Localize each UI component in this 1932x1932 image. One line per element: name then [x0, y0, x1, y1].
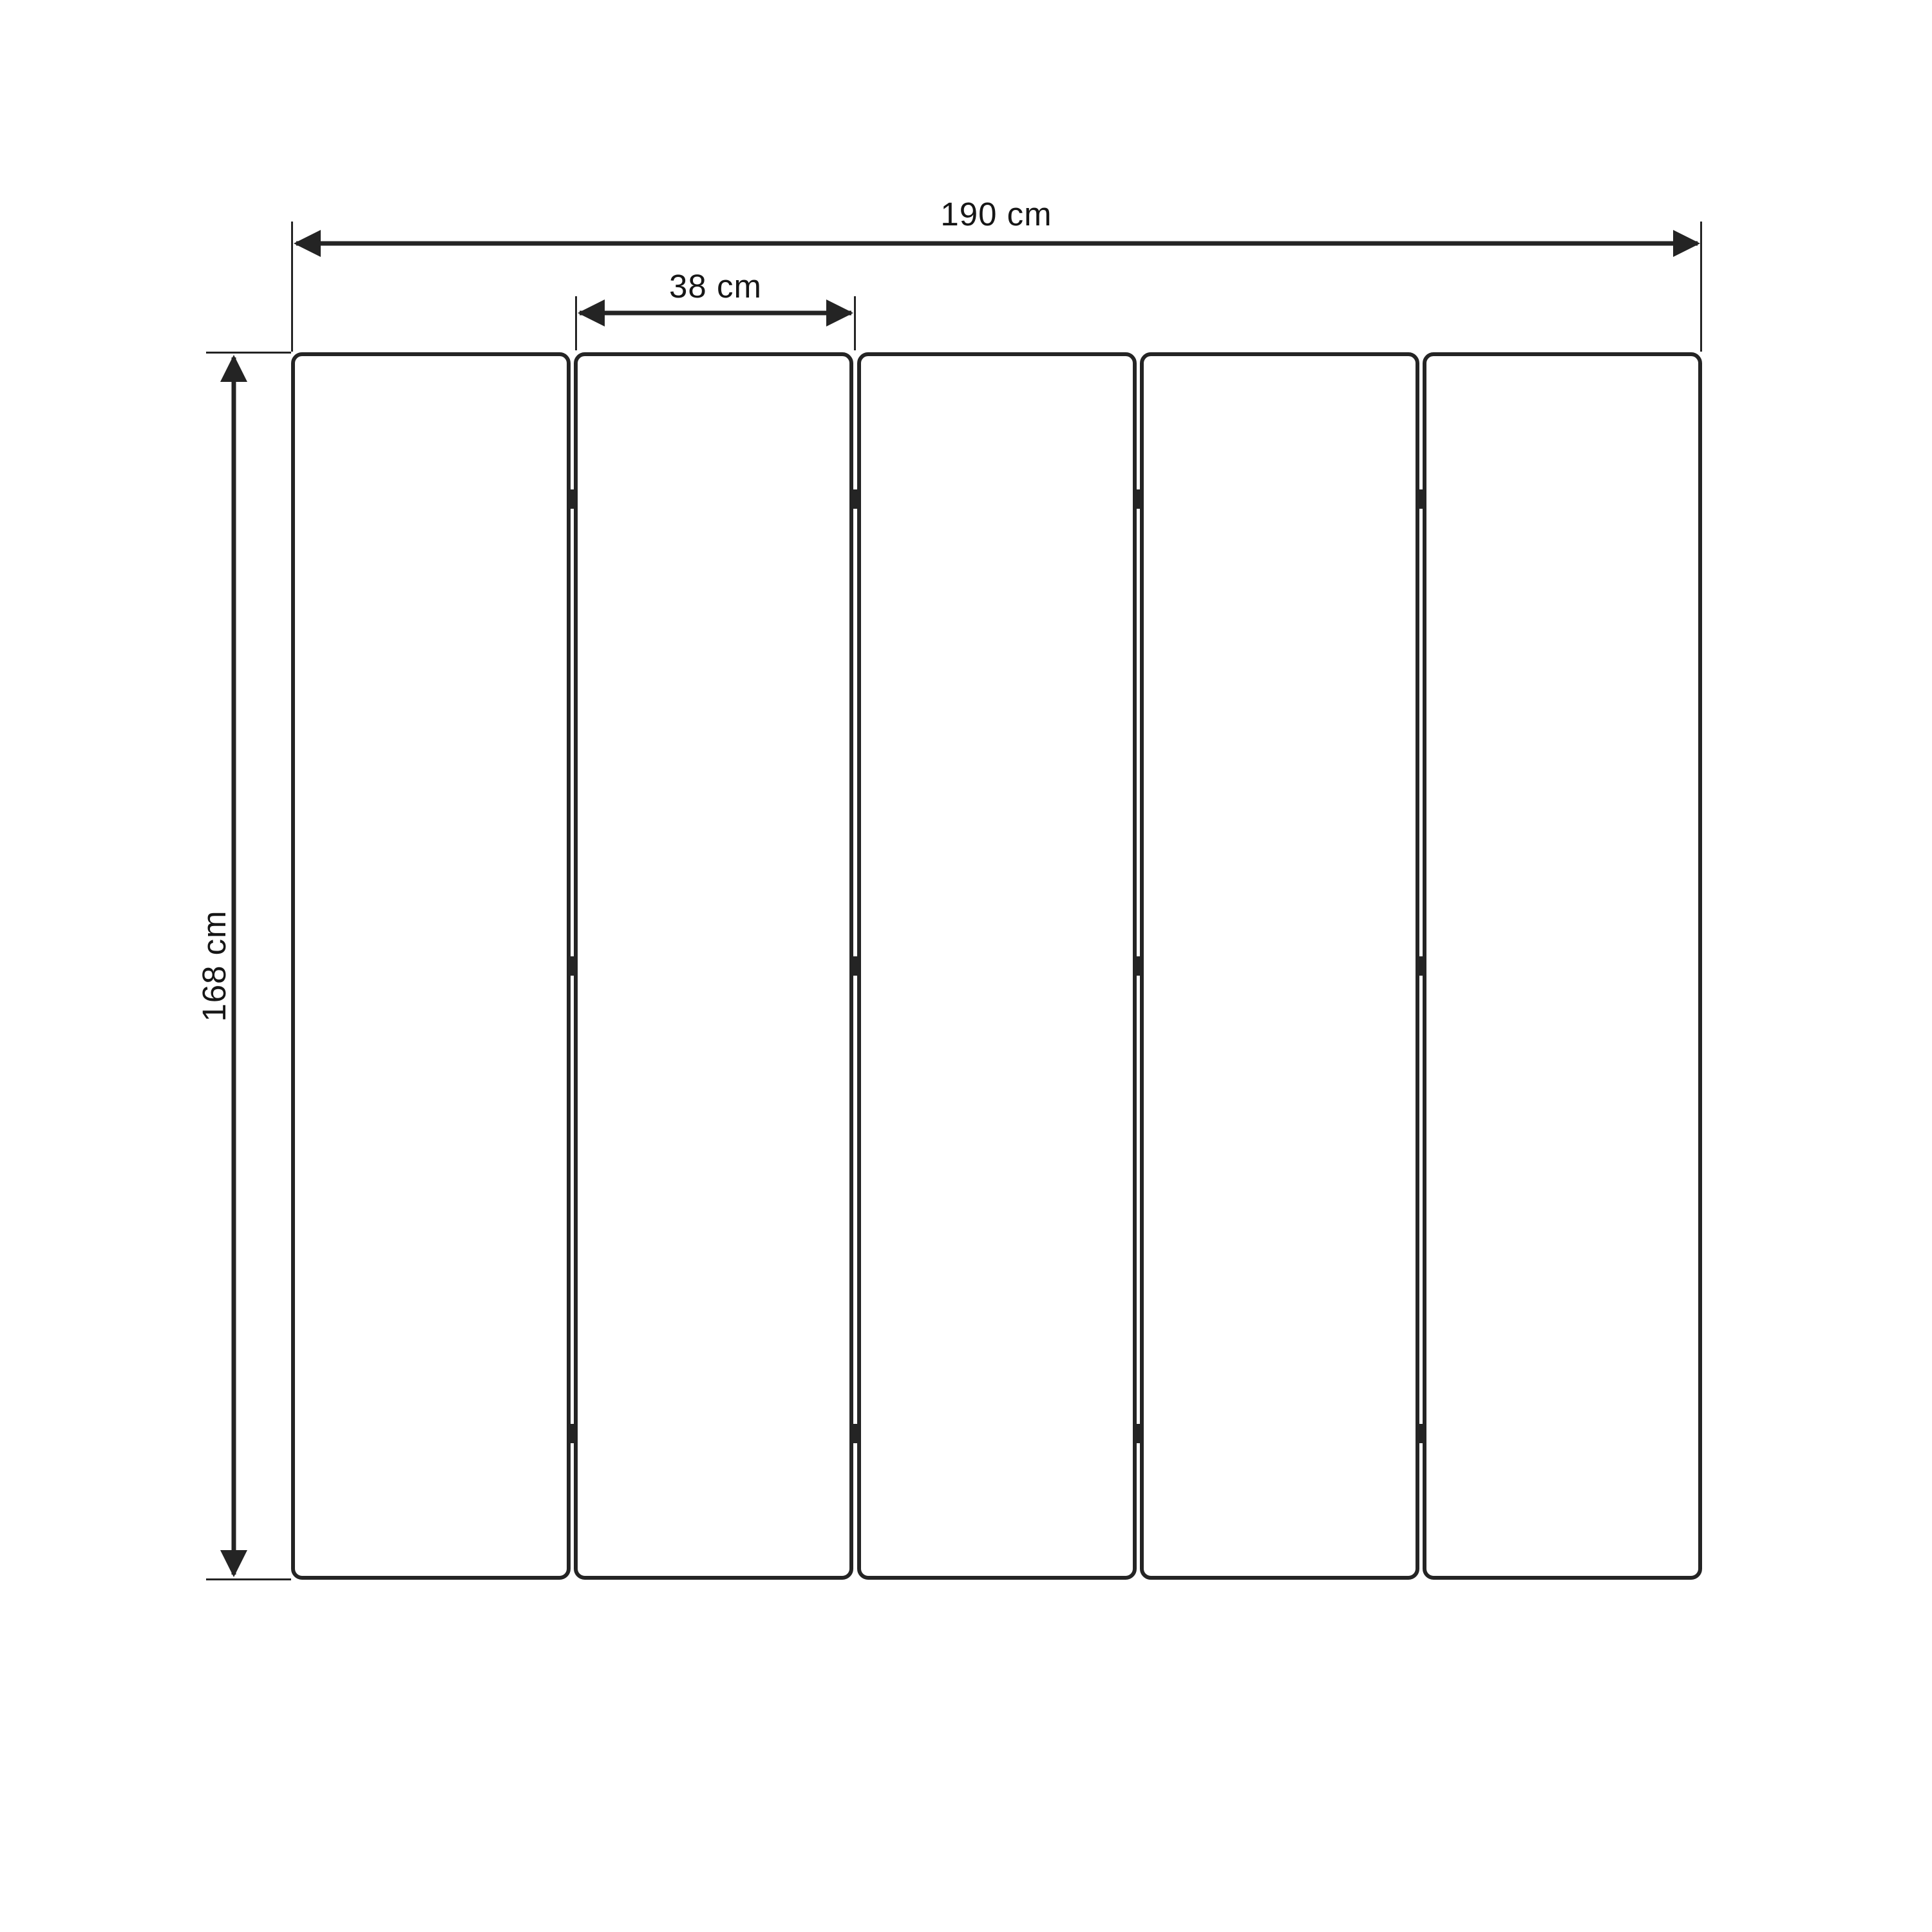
panels	[293, 354, 1700, 1578]
panel-width-label: 38 cm	[669, 268, 762, 305]
hinge-connector	[1416, 489, 1426, 509]
arrow-left-icon	[578, 299, 605, 327]
panel-5	[1425, 354, 1700, 1578]
arrow-down-icon	[220, 1550, 247, 1577]
panel-width-dimension: 38 cm	[576, 268, 855, 350]
hinge-connector	[850, 956, 860, 976]
diagram-svg: 190 cm 38 cm 168 cm	[0, 0, 1932, 1932]
height-label: 168 cm	[196, 910, 232, 1021]
hinge-connector	[567, 956, 578, 976]
hinge-connector	[1133, 1424, 1144, 1443]
panel-4	[1142, 354, 1417, 1578]
dimension-diagram: 190 cm 38 cm 168 cm	[0, 0, 1932, 1932]
arrow-up-icon	[220, 355, 247, 382]
hinge-connector	[1133, 956, 1144, 976]
total-width-dimension: 190 cm	[292, 196, 1701, 352]
hinge-connector	[1133, 489, 1144, 509]
total-width-label: 190 cm	[940, 196, 1052, 232]
hinge-connector	[850, 1424, 860, 1443]
hinge-connector	[567, 489, 578, 509]
hinge-connector	[1416, 956, 1426, 976]
hinge-connector	[567, 1424, 578, 1443]
height-dimension: 168 cm	[196, 353, 291, 1580]
hinge-connector	[850, 489, 860, 509]
panel-1	[293, 354, 569, 1578]
arrow-right-icon	[1673, 230, 1700, 257]
panel-2	[576, 354, 851, 1578]
arrow-right-icon	[826, 299, 853, 327]
panel-3	[859, 354, 1135, 1578]
arrow-left-icon	[294, 230, 321, 257]
hinge-connector	[1416, 1424, 1426, 1443]
